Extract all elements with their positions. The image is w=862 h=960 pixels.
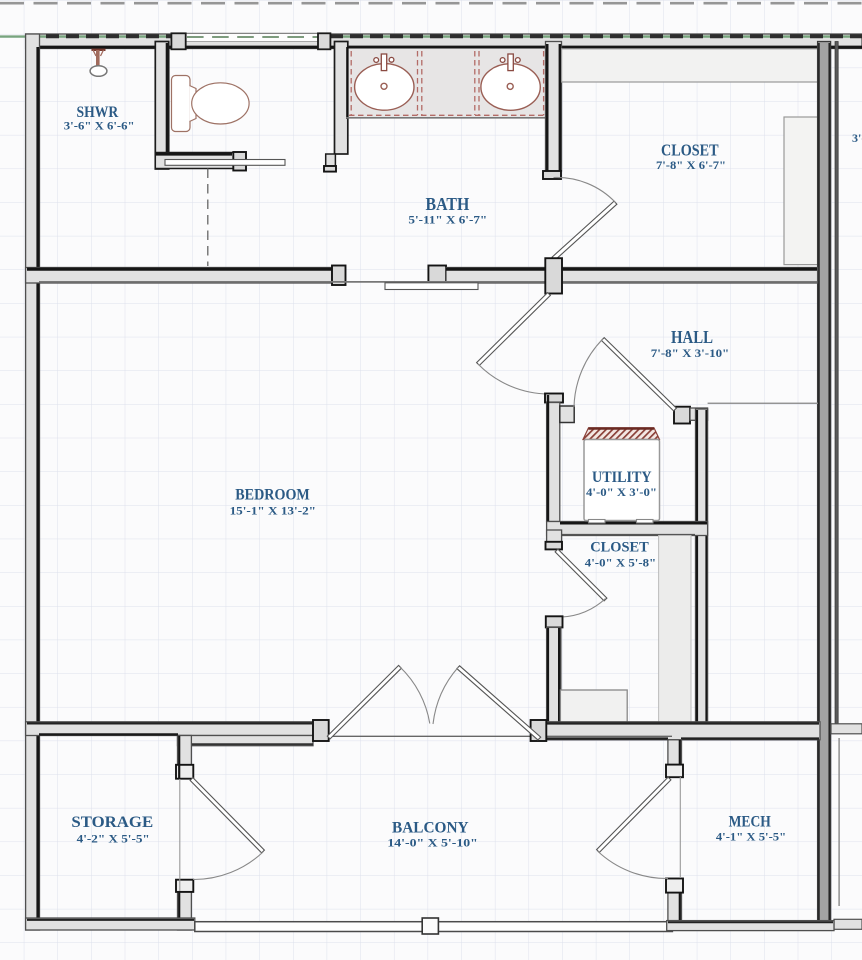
svg-text:BATH: BATH xyxy=(426,194,470,214)
svg-text:STORAGE: STORAGE xyxy=(71,814,153,831)
svg-text:UTILITY: UTILITY xyxy=(592,469,652,486)
svg-text:3'-6" X 6'-6": 3'-6" X 6'-6" xyxy=(64,119,135,133)
svg-text:CLOSET: CLOSET xyxy=(661,140,719,159)
svg-text:7'-8" X 6'-7": 7'-8" X 6'-7" xyxy=(656,158,726,172)
svg-text:HALL: HALL xyxy=(671,327,713,347)
svg-text:15'-1" X 13'-2": 15'-1" X 13'-2" xyxy=(230,504,316,518)
svg-text:4'-0" X 5'-8": 4'-0" X 5'-8" xyxy=(585,555,656,569)
svg-text:BEDROOM: BEDROOM xyxy=(235,487,310,504)
svg-text:3'-6: 3'-6 xyxy=(852,131,862,145)
svg-text:14'-0" X 5'-10": 14'-0" X 5'-10" xyxy=(387,836,478,850)
svg-text:4'-1" X 5'-5": 4'-1" X 5'-5" xyxy=(716,829,786,843)
svg-text:5'-11" X 6'-7": 5'-11" X 6'-7" xyxy=(408,213,487,227)
svg-text:4'-2" X 5'-5": 4'-2" X 5'-5" xyxy=(77,832,150,846)
svg-text:MECH: MECH xyxy=(729,813,772,830)
svg-text:4'-0" X 3'-0": 4'-0" X 3'-0" xyxy=(586,485,657,499)
svg-text:7'-8" X 3'-10": 7'-8" X 3'-10" xyxy=(651,346,730,360)
svg-text:CLOSET: CLOSET xyxy=(590,540,649,556)
svg-text:BALCONY: BALCONY xyxy=(392,820,469,837)
